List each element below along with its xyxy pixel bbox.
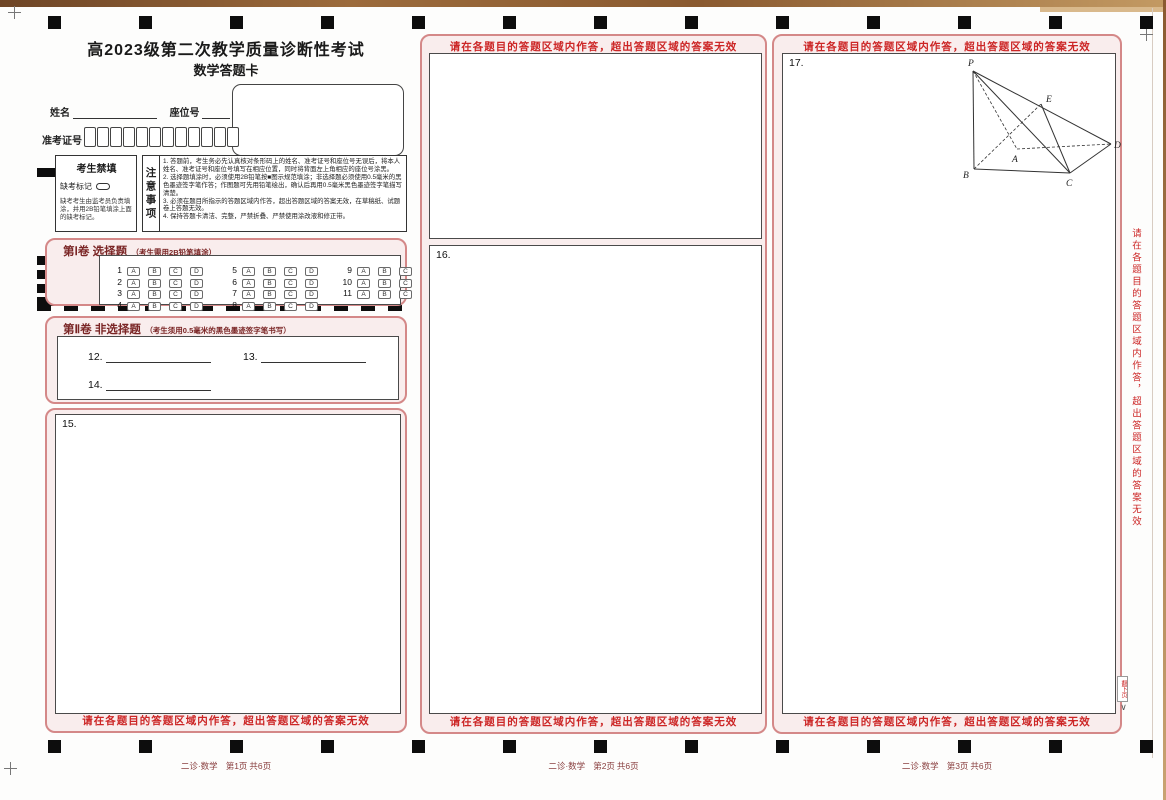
timing-mark: [776, 16, 789, 29]
exam-no-digit-box: [201, 127, 213, 147]
exam-no-digit-box: [175, 127, 187, 147]
option-bubble-C: C: [284, 302, 297, 311]
option-bubble-A: A: [127, 302, 140, 311]
notice-item: 3. 必须在题目所指示的答题区域内作答，超出答题区域的答案无效，在草稿纸、试题卷…: [163, 198, 403, 214]
option-bubble-B: B: [148, 302, 161, 311]
question16-answer-area: 16.: [429, 245, 762, 714]
exam-no-boxes: [84, 127, 240, 147]
notice-title: 注意事项: [143, 156, 160, 231]
timing-mark: [958, 16, 971, 29]
figure-label-C: C: [1066, 179, 1073, 188]
exam-no-digit-box: [162, 127, 174, 147]
mc-question-row: 3ABCD: [106, 283, 211, 295]
timing-mark: [594, 16, 607, 29]
scan-edge-top-right: [1040, 7, 1166, 12]
figure-label-A: A: [1011, 155, 1018, 165]
timing-mark: [230, 740, 243, 753]
exam-no-digit-box: [149, 127, 161, 147]
option-bubble-A: A: [357, 290, 370, 299]
turn-page-indicator: 翻下页 ∨: [1117, 676, 1130, 716]
blank-12-line: [106, 352, 211, 363]
notice-items: 1. 答题前，考生务必先认真核对条形码上的姓名、准考证号和座位号无误后，将本人姓…: [160, 156, 406, 231]
option-bubble-A: A: [242, 302, 255, 311]
page3-panel: 请在各题目的答题区域内作答，超出答题区域的答案无效 17. P: [772, 34, 1122, 734]
down-arrow-icon: ∨: [1117, 702, 1130, 712]
footer-page1: 二诊·数学第1页共6页: [45, 760, 407, 772]
page2-panel: 请在各题目的答题区域内作答，超出答题区域的答案无效 16. 请在各题目的答题区域…: [420, 34, 767, 734]
warning-text: 请在各题目的答题区域内作答，超出答题区域的答案无效: [774, 39, 1120, 54]
answer-sheet-scan: 高2023级第二次教学质量诊断性考试 数学答题卡 姓名 座位号 准考证号 考生禁…: [0, 0, 1166, 800]
option-bubble-C: C: [169, 302, 182, 311]
notice-box: 注意事项 1. 答题前，考生务必先认真核对条形码上的姓名、准考证号和座位号无误后…: [142, 155, 407, 232]
question15-panel: 15. 请在各题目的答题区域内作答，超出答题区域的答案无效: [45, 408, 407, 733]
timing-mark: [48, 16, 61, 29]
timing-mark: [139, 740, 152, 753]
exam-no-digit-box: [227, 127, 239, 147]
timing-mark: [867, 16, 880, 29]
exam-no-digit-box: [97, 127, 109, 147]
question15-label: 15.: [62, 418, 77, 430]
absent-mark-bubble: [96, 183, 110, 190]
exam-no-digit-box: [136, 127, 148, 147]
mc-question-row: 5ABCD: [221, 260, 326, 272]
figure-label-E: E: [1045, 95, 1052, 105]
name-blank-line: [73, 108, 157, 119]
timing-mark: [867, 740, 880, 753]
turn-page-label: 翻下页: [1117, 676, 1128, 702]
blank-13-line: [261, 352, 366, 363]
forbidden-fill-box: 考生禁填 缺考标记 缺考考生由监考员负责填涂，并用2B铅笔填涂上面的缺考标记。: [55, 155, 137, 232]
mc-question-row: 2ABCD: [106, 272, 211, 284]
option-bubble-D: D: [305, 302, 318, 311]
mc-question-row: 4ABCD: [106, 295, 211, 307]
section2-panel: 第Ⅱ卷 非选择题 （考生须用0.5毫米的黑色墨迹签字笔书写） 12. 13. 1…: [45, 316, 407, 404]
timing-mark: [1049, 16, 1062, 29]
warning-text: 请在各题目的答题区域内作答，超出答题区域的答案无效: [422, 714, 765, 729]
name-field: 姓名 座位号: [50, 104, 230, 119]
option-bubble-B: B: [263, 302, 276, 311]
registration-cross-icon: [8, 6, 21, 19]
question15-answer-area: 15.: [55, 414, 401, 714]
timing-mark: [685, 740, 698, 753]
timing-mark: [776, 740, 789, 753]
mc-answer-box: 1ABCD2ABCD3ABCD4ABCD5ABCD6ABCD7ABCD8ABCD…: [99, 255, 401, 305]
option-bubble-D: D: [190, 302, 203, 311]
question15-continued-area: [429, 53, 762, 239]
paper-edge-line: [1152, 8, 1153, 758]
question17-label: 17.: [789, 57, 804, 69]
section2-title: 第Ⅱ卷 非选择题: [63, 324, 141, 336]
question-number: 11: [336, 288, 352, 298]
exam-no-digit-box: [214, 127, 226, 147]
forbidden-note: 缺考考生由监考员负责填涂，并用2B铅笔填涂上面的缺考标记。: [60, 198, 133, 222]
registration-cross-icon: [4, 762, 17, 775]
absent-mark-row: 缺考标记: [60, 181, 133, 192]
timing-mark: [412, 740, 425, 753]
section1-panel: 第Ⅰ卷 选择题 （考生需用2B铅笔填涂） 1ABCD2ABCD3ABCD4ABC…: [45, 238, 407, 306]
blank-12: 12.: [88, 351, 211, 363]
exam-subtitle: 数学答题卡: [45, 60, 407, 79]
blank-14-line: [106, 380, 211, 391]
timing-mark: [48, 740, 61, 753]
timing-dash: [37, 305, 51, 311]
forbidden-title: 考生禁填: [60, 160, 133, 175]
timing-mark: [503, 16, 516, 29]
seat-label: 座位号: [170, 108, 200, 119]
warning-text: 请在各题目的答题区域内作答，超出答题区域的答案无效: [774, 714, 1120, 729]
geometry-figure: P E D A B C: [943, 54, 1121, 188]
question17-answer-area: 17. P E D A B: [782, 53, 1116, 714]
timing-mark: [685, 16, 698, 29]
barcode-paste-area: [232, 84, 404, 156]
timing-mark: [594, 740, 607, 753]
timing-mark: [1140, 16, 1153, 29]
mc-question-row: 1ABCD: [106, 260, 211, 272]
mc-grid: 1ABCD2ABCD3ABCD4ABCD5ABCD6ABCD7ABCD8ABCD…: [106, 260, 451, 306]
question-number: 8: [221, 300, 237, 310]
absent-mark-label: 缺考标记: [60, 182, 92, 191]
timing-mark: [503, 740, 516, 753]
timing-mark: [321, 740, 334, 753]
exam-no-digit-box: [123, 127, 135, 147]
timing-mark: [230, 16, 243, 29]
blank-13: 13.: [243, 351, 366, 363]
timing-mark: [139, 16, 152, 29]
option-bubble-B: B: [378, 290, 391, 299]
notice-item: 1. 答题前，考生务必先认真核对条形码上的姓名、准考证号和座位号无误后，将本人姓…: [163, 158, 403, 174]
blanks-box: 12. 13. 14.: [57, 336, 399, 400]
exam-no-digit-box: [84, 127, 96, 147]
figure-label-D: D: [1113, 141, 1121, 151]
figure-label-B: B: [963, 171, 969, 181]
mc-question-row: 8ABCD: [221, 295, 326, 307]
question16-label: 16.: [436, 249, 451, 261]
name-label: 姓名: [50, 108, 70, 119]
section2-hint: （考生须用0.5毫米的黑色墨迹签字笔书写）: [145, 326, 290, 335]
exam-no-label: 准考证号: [42, 132, 82, 147]
option-bubble-C: C: [399, 290, 412, 299]
side-margin-warning: 请在各题目的答题区域内作答，超出答题区域的答案无效: [1128, 228, 1142, 558]
notice-item: 2. 选择题填涂时，必须使用2B铅笔按■图示规范填涂；非选择题必须使用0.5毫米…: [163, 174, 403, 198]
timing-marks-bottom: [48, 740, 1158, 754]
mc-question-row: 7ABCD: [221, 283, 326, 295]
question-number: 4: [106, 300, 122, 310]
exam-no-digit-box: [110, 127, 122, 147]
exam-title: 高2023级第二次教学质量诊断性考试: [45, 36, 407, 60]
warning-text: 请在各题目的答题区域内作答，超出答题区域的答案无效: [422, 39, 765, 54]
timing-mark: [412, 16, 425, 29]
figure-label-P: P: [967, 59, 974, 69]
footer-page3: 二诊·数学第3页共6页: [772, 760, 1122, 772]
notice-item: 4. 保持答题卡清洁、完整，严禁折叠、严禁使用涂改液和修正带。: [163, 213, 403, 221]
timing-mark: [1140, 740, 1153, 753]
exam-no-digit-box: [188, 127, 200, 147]
warning-text: 请在各题目的答题区域内作答，超出答题区域的答案无效: [47, 713, 405, 728]
timing-mark: [1049, 740, 1062, 753]
blank-14: 14.: [88, 379, 211, 391]
mc-question-row: 6ABCD: [221, 272, 326, 284]
timing-marks-top: [48, 16, 1158, 30]
timing-mark: [321, 16, 334, 29]
footer-page2: 二诊·数学第2页共6页: [420, 760, 767, 772]
scan-edge-top: [0, 0, 1166, 7]
seat-blank-line: [202, 108, 230, 119]
timing-mark: [958, 740, 971, 753]
